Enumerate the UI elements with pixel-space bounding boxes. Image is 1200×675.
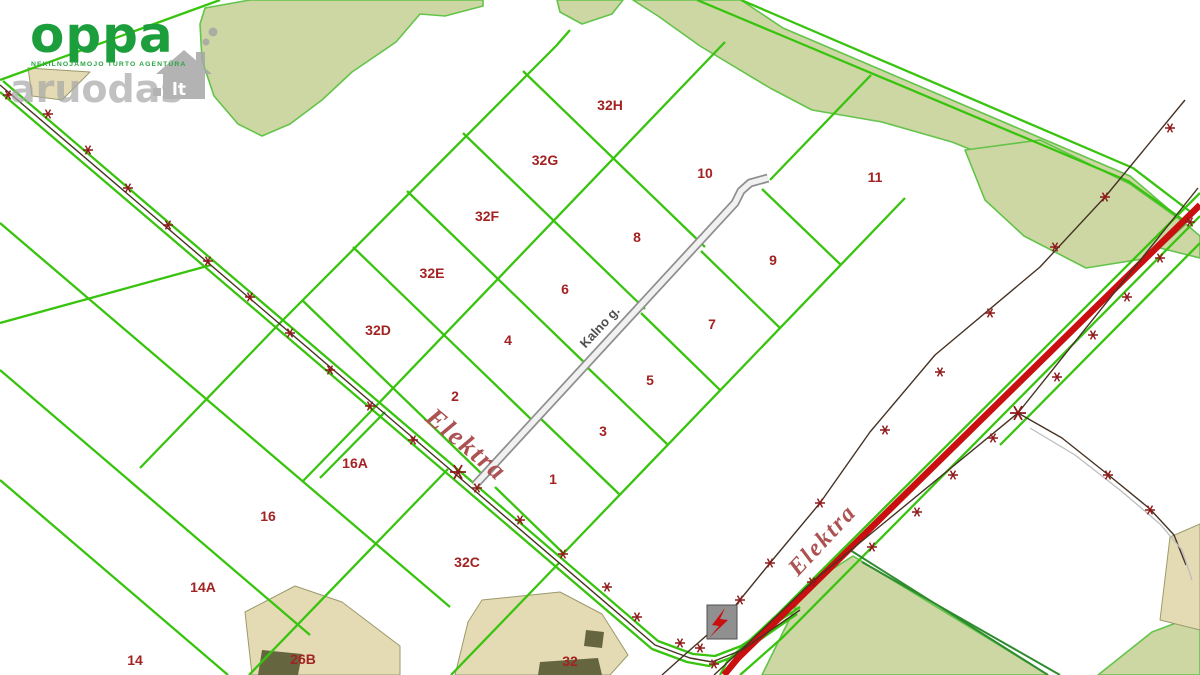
parcel-label: 2 [451, 388, 459, 404]
watermark-lt-text: lt [172, 80, 186, 100]
parcel-label: 3 [599, 423, 607, 439]
parcel-label: 32C [454, 554, 480, 570]
parcel-label: 16A [342, 455, 368, 471]
plot-map: 32H32G32F32E32D101189674523116A1614A1426… [0, 0, 1200, 675]
parcel-label: 32H [597, 97, 623, 113]
parcel-label: 32E [420, 265, 445, 281]
parcel-label: 14 [127, 652, 143, 668]
parcel-label: 11 [868, 169, 883, 185]
building-footprint [584, 630, 604, 648]
oppa-logo-text: oppa [30, 6, 174, 64]
parcel-label: 1 [549, 471, 557, 487]
parcel-label: 9 [769, 252, 777, 268]
parcel-label: 7 [708, 316, 716, 332]
parcel-label: 26B [290, 651, 316, 667]
parcel-label: 4 [504, 332, 512, 348]
parcel-label: 6 [561, 281, 569, 297]
parcel-label: 10 [697, 165, 713, 181]
parcel-label: 32G [532, 152, 559, 168]
watermark-dot [153, 88, 161, 96]
oppa-logo-subtext: NEKILNOJAMOJO TURTO AGENTŪRA [31, 60, 186, 68]
parcel-label: 8 [633, 229, 641, 245]
parcel-label: 5 [646, 372, 654, 388]
parcel-label: 14A [190, 579, 216, 595]
parcel-label: 32D [365, 322, 391, 338]
parcel-label: 16 [260, 508, 276, 524]
map-stage: 32H32G32F32E32D101189674523116A1614A1426… [0, 0, 1200, 675]
oppa-logo: oppa NEKILNOJAMOJO TURTO AGENTŪRA [30, 6, 186, 68]
parcel-label: 32 [562, 653, 578, 669]
parcel-label: 32F [475, 208, 500, 224]
